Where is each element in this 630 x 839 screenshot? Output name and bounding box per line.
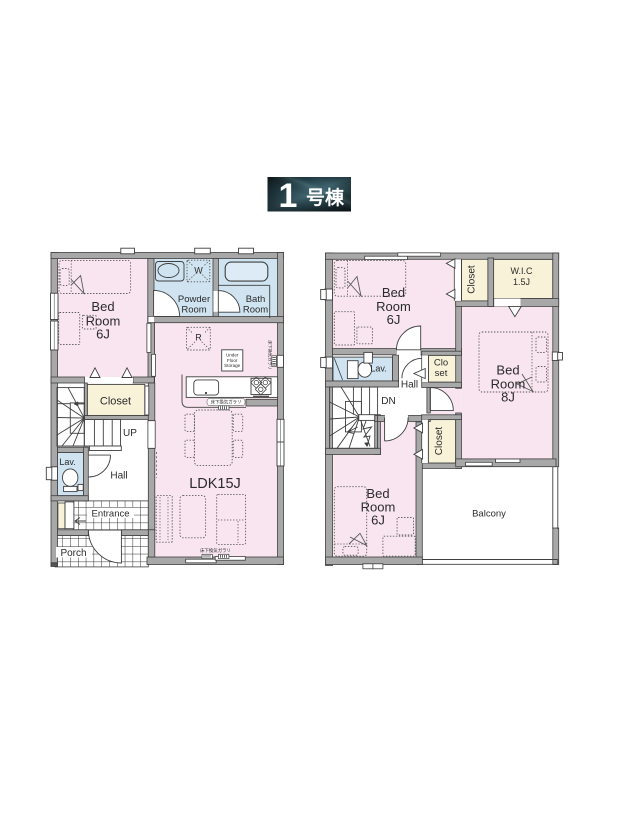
svg-text:Porch: Porch bbox=[60, 548, 86, 559]
svg-text:Lav.: Lav. bbox=[59, 457, 75, 467]
svg-text:W.I.C: W.I.C bbox=[511, 266, 533, 276]
svg-text:1: 1 bbox=[279, 177, 298, 215]
svg-text:6J: 6J bbox=[96, 327, 110, 342]
svg-text:Bed: Bed bbox=[382, 285, 405, 300]
svg-text:Closet: Closet bbox=[100, 396, 131, 408]
svg-text:Room: Room bbox=[243, 305, 268, 316]
svg-text:W: W bbox=[194, 266, 203, 276]
svg-text:Bed: Bed bbox=[496, 363, 519, 378]
svg-text:Balcony: Balcony bbox=[472, 509, 506, 520]
svg-text:LDK15J: LDK15J bbox=[189, 476, 241, 492]
svg-text:6J: 6J bbox=[387, 312, 401, 327]
svg-text:DN: DN bbox=[381, 396, 395, 407]
svg-text:8J: 8J bbox=[501, 390, 515, 405]
svg-text:1.5J: 1.5J bbox=[513, 277, 530, 287]
svg-text:6J: 6J bbox=[371, 513, 385, 528]
svg-text:R: R bbox=[195, 333, 202, 343]
svg-text:Bath: Bath bbox=[246, 294, 266, 305]
svg-text:号棟: 号棟 bbox=[306, 186, 345, 209]
svg-text:Entrance: Entrance bbox=[91, 509, 129, 520]
svg-text:Clo: Clo bbox=[434, 358, 448, 369]
svg-text:Hall: Hall bbox=[401, 380, 418, 391]
svg-text:床下換気ガラリ: 床下換気ガラリ bbox=[211, 399, 242, 406]
svg-text:Powder: Powder bbox=[178, 294, 210, 305]
svg-text:Room: Room bbox=[181, 305, 206, 316]
svg-text:Hall: Hall bbox=[110, 471, 127, 482]
svg-text:Closet: Closet bbox=[434, 427, 445, 456]
svg-text:Bed: Bed bbox=[91, 299, 114, 314]
svg-text:Lav.: Lav. bbox=[370, 364, 386, 374]
svg-text:Storage: Storage bbox=[224, 363, 241, 368]
svg-text:UP: UP bbox=[123, 428, 137, 439]
svg-text:Closet: Closet bbox=[467, 265, 478, 294]
svg-text:床下換気ガラリ: 床下換気ガラリ bbox=[200, 547, 231, 554]
svg-text:set: set bbox=[435, 368, 448, 379]
